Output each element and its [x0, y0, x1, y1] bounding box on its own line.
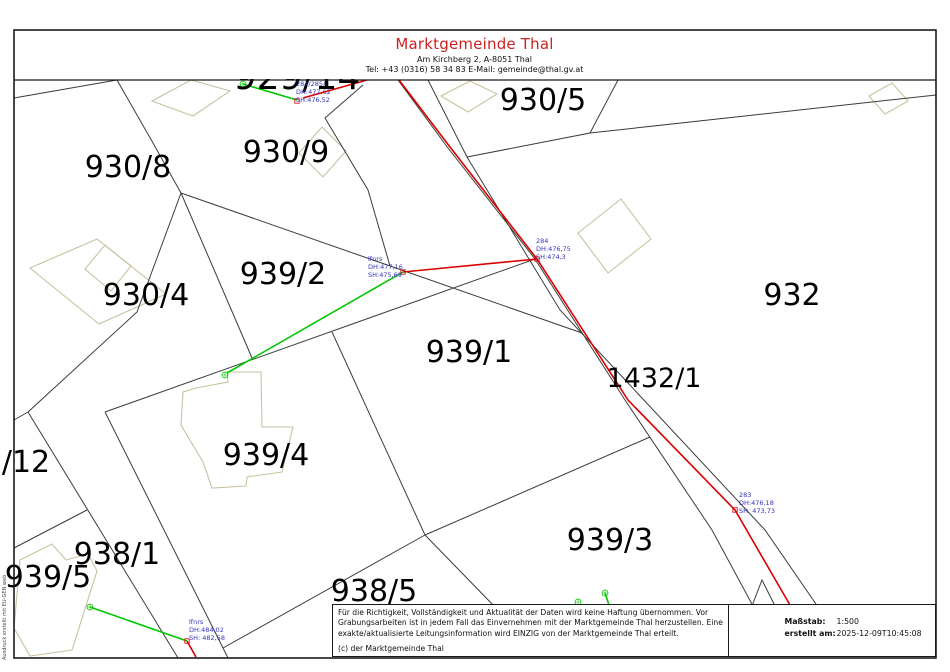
parcel-number-label: 930/9 — [243, 135, 329, 170]
parcel-number-label: 1432/1 — [607, 363, 702, 394]
parcel-number-label: 939/1 — [426, 335, 512, 370]
created-value: 2025-12-09T10:45:08 — [837, 629, 922, 638]
survey-point-label: DH:476,18 — [739, 499, 774, 507]
parcel-boundary-line — [752, 580, 775, 606]
parcel-boundary-line — [425, 437, 650, 535]
parcel-number-label: 939/4 — [223, 438, 309, 473]
green-utility-line — [90, 607, 187, 641]
parcel-number-label: 939/3 — [567, 523, 653, 558]
parcel-number-label: 930/5 — [500, 83, 586, 118]
scale-value: 1:500 — [837, 617, 922, 626]
survey-point-label: SH:475,69 — [368, 271, 402, 279]
print-tool-note: Ausdruck erstellt mit EU-GEN web — [2, 575, 8, 660]
survey-point-label: lfnrs — [189, 618, 204, 626]
parcel-boundary-line — [325, 85, 390, 266]
parcel-boundary-line — [105, 412, 228, 658]
disclaimer-box: Für die Richtigkeit, Vollständigkeit und… — [332, 604, 729, 657]
parcel-boundary-line — [14, 80, 117, 98]
parcel-number-label: 932 — [763, 278, 820, 313]
copyright-text: (c) der Marktgemeinde Thal — [338, 644, 444, 653]
cadastral-map-page: 929/14930/8930/9930/5939/2930/4932939/11… — [0, 0, 950, 672]
parcel-boundary-line — [28, 412, 178, 658]
survey-point-label: SH: 482,58 — [189, 634, 225, 642]
parcel-labels-layer: 929/14930/8930/9930/5939/2930/4932939/11… — [2, 57, 821, 609]
survey-point-label: DH:477,62 — [296, 88, 331, 96]
survey-point-label: 284 — [536, 237, 548, 245]
scale-label: Maßstab: — [785, 617, 837, 626]
parcel-number-label: 930/4 — [103, 278, 189, 313]
survey-point-label: SH: 473,73 — [739, 507, 775, 515]
municipality-address: Am Kirchberg 2, A-8051 Thal — [15, 55, 934, 64]
building-outline — [152, 80, 230, 116]
parcel-boundary-line — [14, 412, 28, 420]
parcel-number-label: 939/5 — [5, 560, 91, 595]
document-header: Marktgemeinde Thal Am Kirchberg 2, A-805… — [15, 31, 934, 79]
parcel-number-label: 939/2 — [240, 257, 326, 292]
parcel-boundary-line — [425, 535, 495, 607]
parcel-number-label: /12 — [2, 445, 50, 480]
survey-point-label: DH:476,75 — [536, 245, 571, 253]
parcel-boundary-line — [590, 95, 936, 133]
disclaimer-text: Für die Richtigkeit, Vollständigkeit und… — [338, 608, 724, 639]
building-outline — [578, 199, 651, 273]
survey-point-label: 283 — [739, 491, 751, 499]
scale-box: Maßstab: 1:500 erstellt am: 2025-12-09T1… — [728, 604, 936, 657]
parcel-number-label: 930/8 — [85, 150, 171, 185]
building-outline — [441, 81, 497, 112]
survey-point-label: SH:474,3 — [536, 253, 566, 261]
survey-point-label: DH:477,16 — [368, 263, 403, 271]
survey-point-label: lfnrs — [368, 255, 383, 263]
map-canvas: 929/14930/8930/9930/5939/2930/4932939/11… — [0, 0, 950, 672]
survey-point-label: DH:484,02 — [189, 626, 224, 634]
survey-point-label: SH:476,52 — [296, 96, 330, 104]
parcel-boundary-line — [332, 332, 425, 535]
municipality-contact: Tel: +43 (0316) 58 34 83 E-Mail: gemeind… — [15, 65, 934, 74]
municipality-title: Marktgemeinde Thal — [15, 35, 934, 53]
survey-point-label: 284/285/ — [296, 80, 326, 88]
created-label: erstellt am: — [785, 629, 837, 638]
